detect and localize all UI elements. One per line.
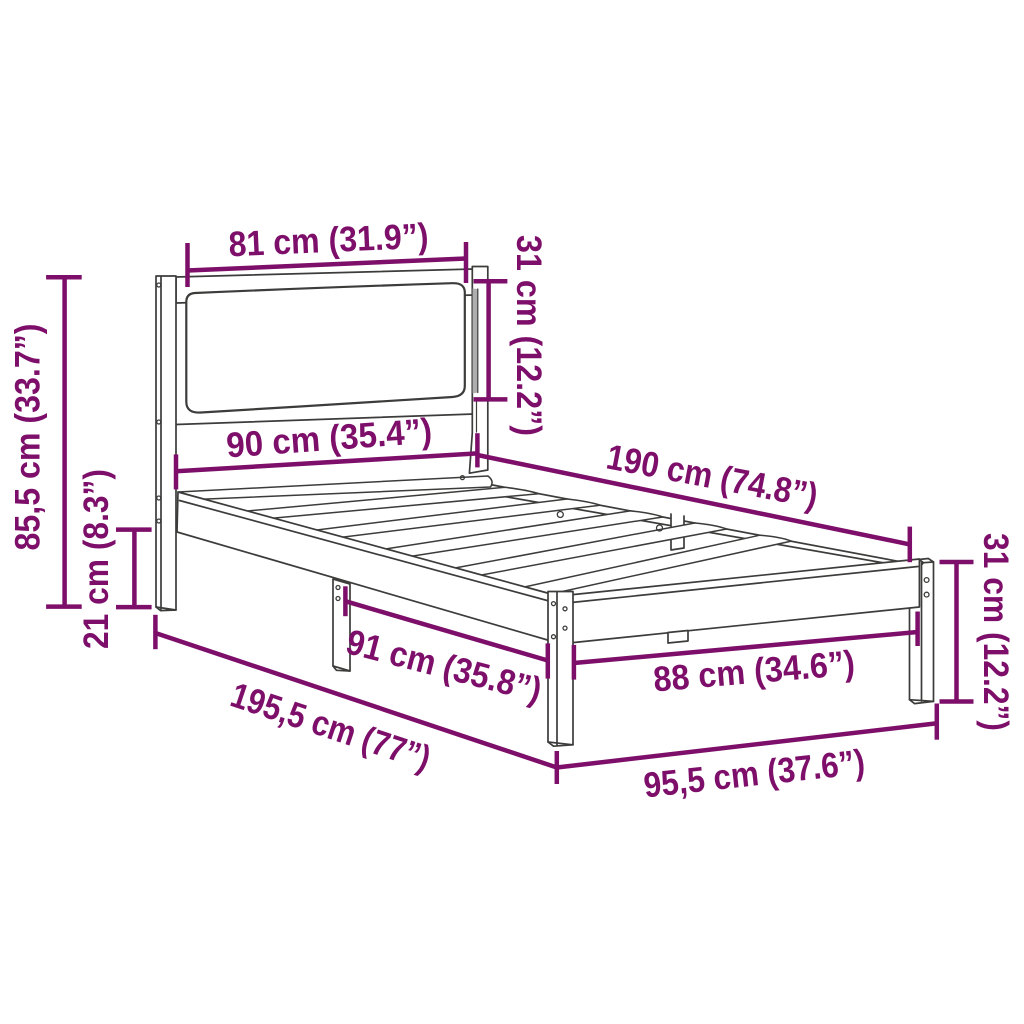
svg-text:85,5 cm (33.7”): 85,5 cm (33.7”)	[8, 324, 48, 551]
svg-text:31 cm (12.2”): 31 cm (12.2”)	[976, 533, 1016, 731]
svg-text:21 cm (8.3”): 21 cm (8.3”)	[76, 469, 116, 649]
svg-text:31 cm (12.2”): 31 cm (12.2”)	[509, 235, 549, 436]
